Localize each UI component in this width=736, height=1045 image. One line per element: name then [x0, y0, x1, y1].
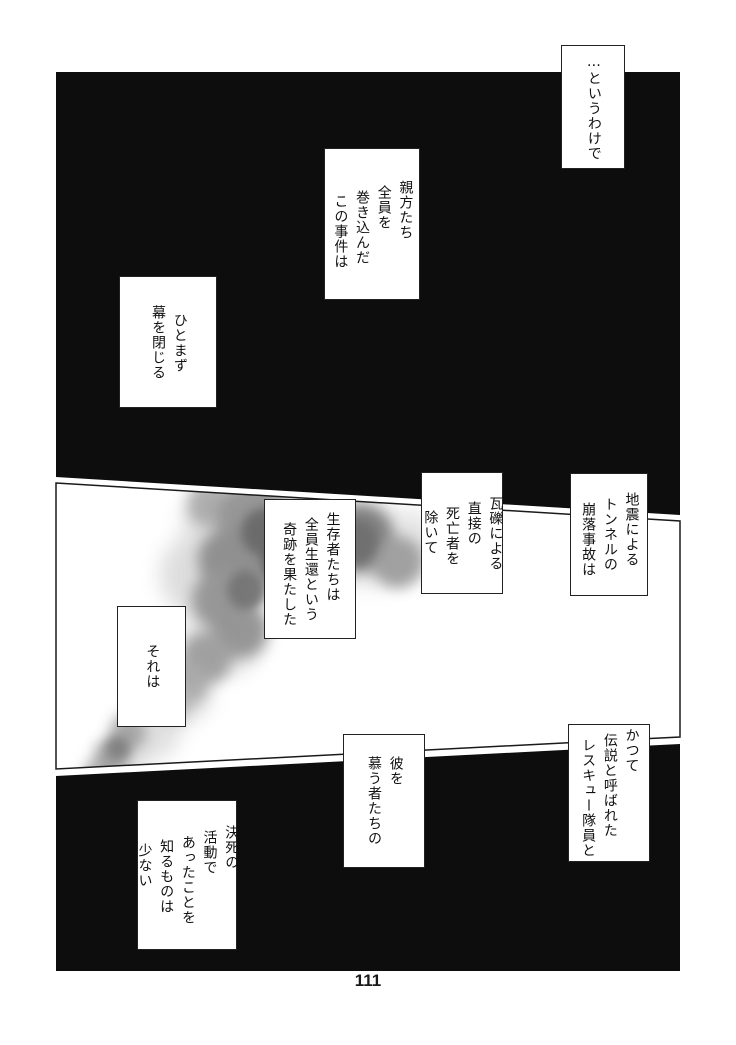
text-column: 生存者たちは: [321, 512, 343, 627]
text-column: 彼を: [384, 756, 406, 846]
speech-text: 地震による トンネルの 崩落事故は: [576, 492, 641, 577]
text-column: 少ない: [133, 843, 155, 925]
speech-box-casualties: 瓦礫による 直接の 死亡者を 除いて: [421, 472, 503, 594]
text-column: 瓦礫による: [484, 496, 506, 571]
speech-box-sore: それは: [117, 606, 186, 727]
speech-box-secret: 決死の 活動で あったことを 知るものは 少ない: [137, 800, 237, 950]
speech-box-rescuer: かつて 伝説と呼ばれた レスキュー隊員と: [568, 724, 650, 862]
text-column: 全員生還という: [299, 517, 321, 627]
speech-box-admirers: 彼を 慕う者たちの: [343, 734, 425, 868]
text-column: 崩落事故は: [576, 502, 598, 577]
text-column: 除いて: [419, 510, 441, 571]
text-column: それは: [141, 644, 163, 689]
text-column: 直接の: [462, 501, 484, 571]
text-column: 巻き込んだ: [350, 190, 372, 269]
speech-box-earthquake: 地震による トンネルの 崩落事故は: [570, 473, 648, 596]
text-column: 決死の: [220, 825, 242, 925]
text-column: かつて: [620, 728, 642, 858]
speech-text: 生存者たちは 全員生還という 奇跡を果たした: [277, 512, 342, 627]
text-column: 地震による: [620, 492, 642, 577]
text-column: レスキュー隊員と: [576, 738, 598, 858]
text-column: …というわけで: [582, 54, 604, 161]
speech-text: 親方たち 全員を 巻き込んだ この事件は: [329, 180, 416, 269]
speech-box-intro: …というわけで: [561, 45, 625, 169]
speech-box-curtain: ひとまず 幕を閉じる: [119, 276, 217, 408]
speech-text: …というわけで: [582, 54, 604, 161]
text-column: あったことを: [176, 835, 198, 925]
text-column: この事件は: [329, 194, 351, 269]
text-column: 伝説と呼ばれた: [598, 733, 620, 858]
text-column: 全員を: [372, 185, 394, 269]
text-column: 親方たち: [394, 180, 416, 269]
speech-text: 彼を 慕う者たちの: [362, 756, 405, 846]
text-column: 幕を閉じる: [146, 305, 168, 380]
page-number: 111: [0, 971, 736, 991]
manga-page: …というわけで 親方たち 全員を 巻き込んだ この事件は ひとまず 幕を閉じる …: [0, 0, 736, 1045]
speech-text: かつて 伝説と呼ばれた レスキュー隊員と: [576, 728, 641, 858]
speech-text: 決死の 活動で あったことを 知るものは 少ない: [133, 825, 241, 925]
text-column: 知るものは: [154, 839, 176, 925]
text-column: 死亡者を: [440, 506, 462, 571]
speech-box-miracle: 生存者たちは 全員生還という 奇跡を果たした: [264, 499, 356, 639]
speech-text: 瓦礫による 直接の 死亡者を 除いて: [419, 496, 506, 571]
text-column: トンネルの: [598, 497, 620, 577]
text-column: 奇跡を果たした: [277, 522, 299, 627]
speech-text: ひとまず 幕を閉じる: [146, 305, 189, 380]
text-column: 慕う者たちの: [362, 756, 384, 846]
speech-text: それは: [141, 644, 163, 689]
text-column: 活動で: [198, 830, 220, 925]
text-column: ひとまず: [168, 313, 190, 380]
speech-box-incident: 親方たち 全員を 巻き込んだ この事件は: [324, 148, 420, 300]
